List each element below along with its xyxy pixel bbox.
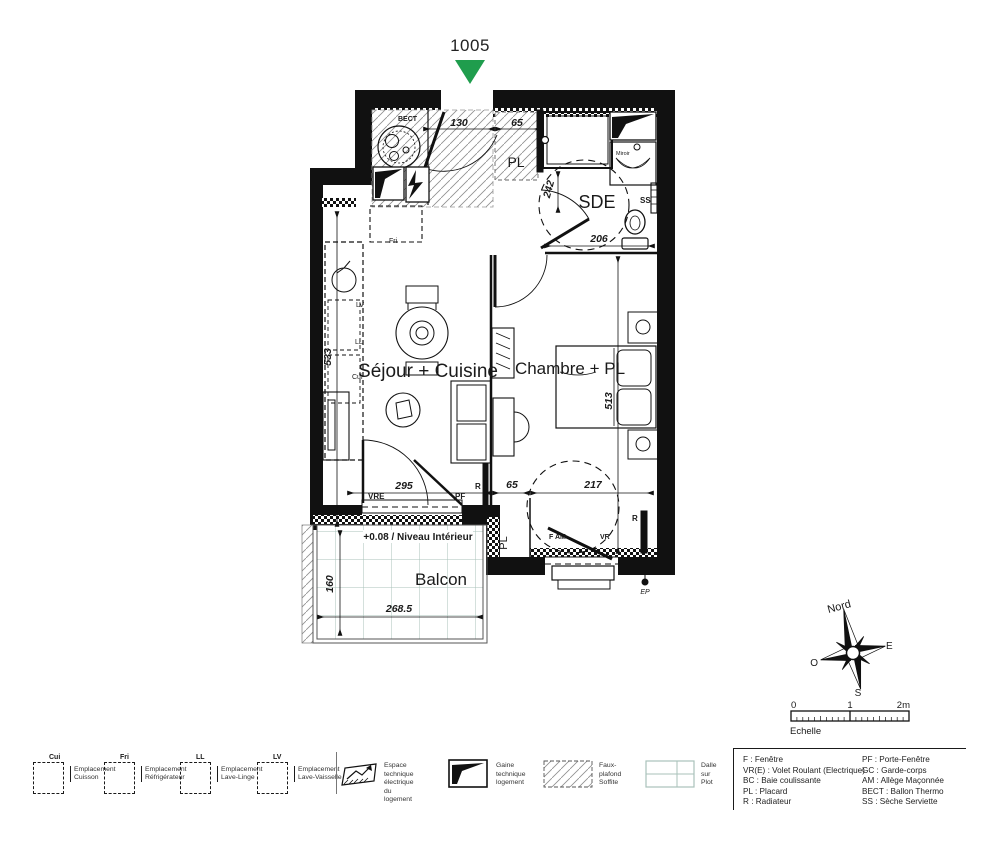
sink-icon (332, 268, 356, 292)
gaine-technique-icon (448, 759, 488, 788)
pl-bottom-label: PL (498, 536, 510, 549)
sde-label: SDE (578, 192, 615, 212)
floor-plan: BECT 130 65 PL SDE Miroir SS 242 206 Fri… (290, 85, 690, 655)
faux-plafond-icon (543, 760, 593, 788)
ss-label: SS (640, 196, 651, 205)
tv-stand (323, 392, 349, 460)
placement-square-icon (257, 762, 288, 794)
pl-entry-label: PL (507, 154, 524, 170)
pillow (617, 389, 651, 425)
dim-pl-top: 65 (511, 117, 523, 129)
legend-lave-vaisselle-tag: LV (273, 754, 281, 761)
dim-entry: 130 (450, 117, 468, 129)
espace-technique-icon (340, 760, 378, 788)
f-am-label: F AM (549, 534, 566, 541)
abbreviations-col1: F : FenêtreVR(E) : Volet Roulant (Electr… (743, 755, 865, 808)
dim-balcon-depth: 160 (324, 575, 336, 593)
placement-square-icon (180, 762, 211, 794)
fridge-placement (370, 206, 422, 242)
abbreviations-box: F : FenêtreVR(E) : Volet Roulant (Electr… (733, 748, 966, 810)
dim-chambre-height: 513 (603, 392, 615, 410)
compass-east-label: E (886, 641, 893, 652)
sejour-label: Séjour + Cuisine (358, 361, 498, 382)
compass-west-label: O (810, 658, 818, 669)
chair (406, 286, 438, 303)
placement-square-icon (33, 762, 64, 794)
dalle-sur-plot-icon (645, 760, 695, 788)
compass: Nord E O S (795, 592, 905, 707)
towel-dryer-icon (651, 183, 657, 213)
balcon-label: Balcon (415, 570, 467, 589)
pf-label: PF (455, 492, 465, 501)
vr-label: VR (600, 534, 610, 541)
vre-label: VRE (368, 492, 385, 501)
dim-sde-width: 206 (589, 233, 608, 245)
scale-1: 1 (847, 700, 852, 711)
floor-plan-page: { "marker": { "unit": "1005" }, "colors"… (0, 0, 1000, 857)
dim-pl-bottom: 65 (506, 479, 518, 491)
legend-cuisson-tag: Cui (49, 754, 60, 761)
unit-marker-pin-icon[interactable] (453, 58, 487, 86)
ll-label: LL (355, 339, 363, 346)
shower-icon (543, 112, 612, 168)
scale-2m: 2m (897, 700, 910, 711)
sejour-furniture (323, 286, 491, 505)
scale-label: Echelle (790, 726, 821, 737)
armchair-icon (386, 393, 420, 427)
placement-square-icon (104, 762, 135, 794)
scale-bar: 0 1 2m Echelle (785, 698, 920, 740)
dim-sde-door: 242 (541, 179, 557, 200)
legend: Cui EmplacementCuisson Fri EmplacementRé… (0, 746, 1000, 818)
chambre-label: Chambre + PL (515, 359, 625, 378)
r-chambre-label: R (632, 514, 638, 523)
nightstand (628, 430, 658, 459)
abbreviations-col2: PF : Porte-FenêtreGC : Garde-corpsAM : A… (862, 755, 944, 808)
legend-lave-linge-tag: LL (196, 754, 205, 761)
unit-number: 1005 (430, 36, 510, 56)
legend-refrigerateur-tag: Fri (120, 754, 129, 761)
fri-label: Fri (389, 238, 398, 245)
compass-north-label: Nord (826, 598, 852, 616)
sde-fixtures (542, 112, 658, 249)
legend-divider (336, 752, 337, 794)
radiator-sejour (483, 463, 488, 505)
desk (493, 398, 514, 456)
miroir-label: Miroir (616, 151, 630, 157)
table-icon (396, 307, 448, 359)
lv-label: LV (356, 302, 364, 309)
porte-fenetre-sejour (362, 440, 462, 513)
unit-marker[interactable]: 1005 (430, 36, 510, 91)
nightstand (628, 312, 658, 343)
washbasin-icon (610, 142, 656, 185)
niveau-label: +0.08 / Niveau Intérieur (363, 532, 472, 543)
scale-0: 0 (791, 700, 796, 711)
dim-sejour-width: 295 (394, 480, 413, 492)
dim-sejour-height: 533 (322, 348, 334, 366)
ep-label: EP (640, 589, 650, 596)
radiator-chambre (641, 511, 647, 553)
dim-chambre-width: 217 (583, 479, 603, 491)
dim-balcon-width: 268.5 (385, 603, 412, 615)
r-sejour-label: R (475, 482, 481, 491)
bect-label: BECT (398, 116, 418, 123)
